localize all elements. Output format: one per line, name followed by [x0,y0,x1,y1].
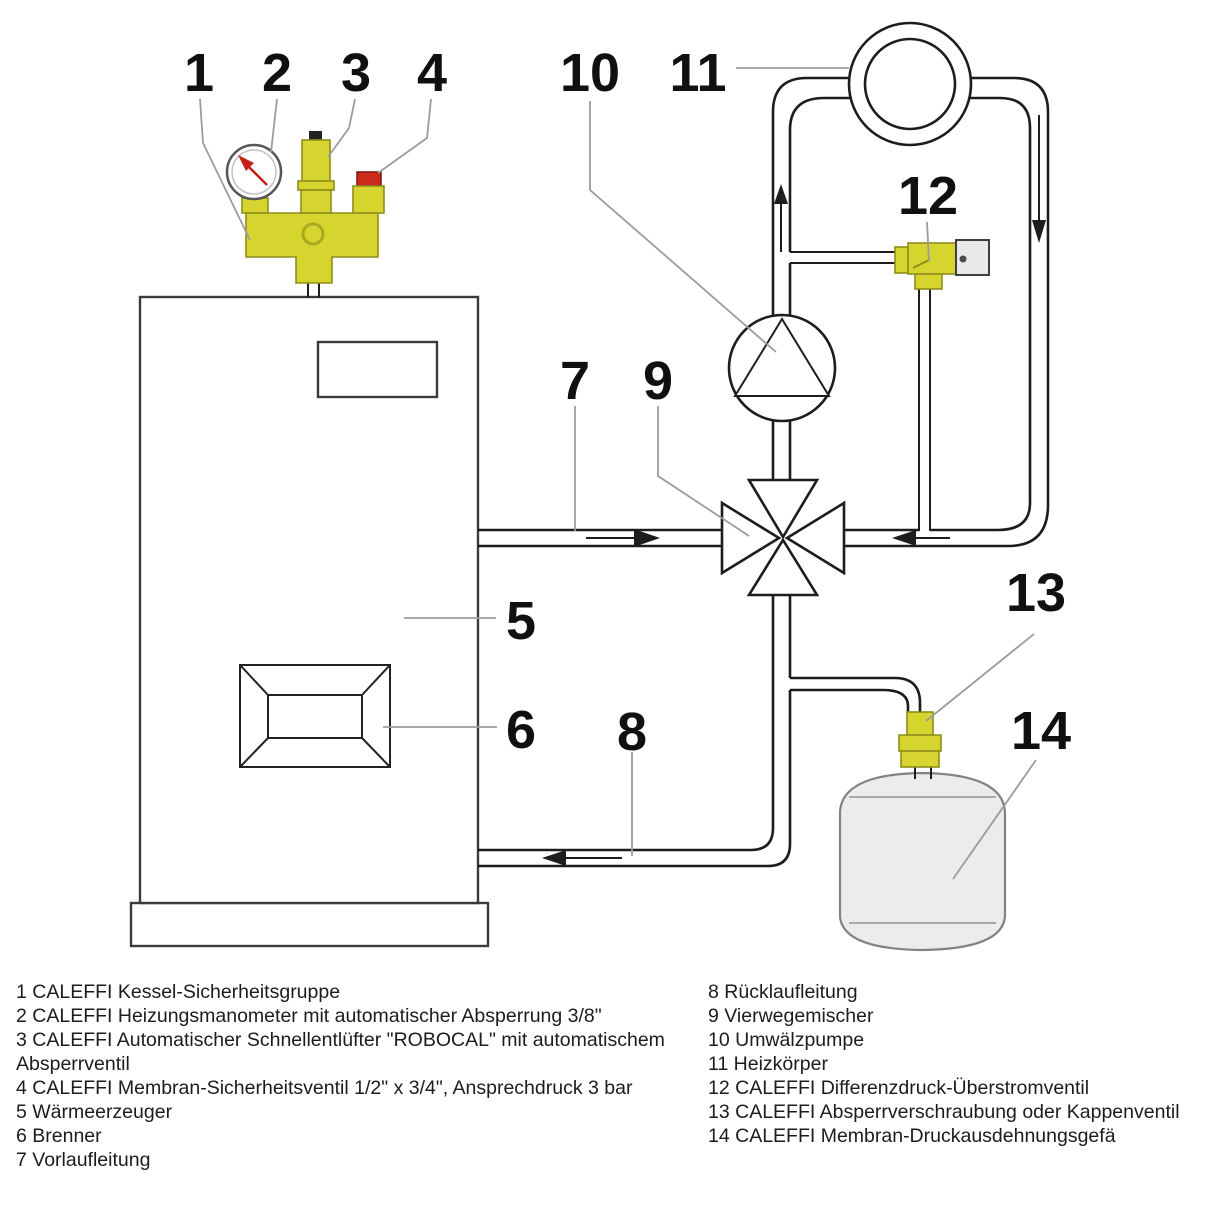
leader-4 [378,99,431,173]
leader-2 [271,99,277,152]
leader-10 [590,101,776,352]
boiler [131,297,488,946]
air-vent [298,131,334,213]
legend-item: 11 Heizkörper [708,1052,1208,1076]
supply-pipe [478,529,722,547]
mixer-pump-pipe [773,421,790,480]
legend-item: 2 CALEFFI Heizungsmanometer mit automati… [16,1004,692,1028]
legend-item: 3 CALEFFI Automatischer Schnellentlüfter… [16,1028,692,1076]
boiler-base [131,903,488,946]
legend-item: 7 Vorlaufleitung [16,1148,692,1172]
shutoff-fitting [899,712,941,779]
expansion-vessel-pipe [790,678,920,712]
legend-left-column: 1 CALEFFI Kessel-Sicherheitsgruppe 2 CAL… [16,980,692,1172]
safety-valve-red-cap [357,172,381,186]
leader-3 [328,99,355,157]
radiator [849,23,971,145]
four-way-mixer [722,480,844,595]
callout-4: 4 [417,43,447,103]
differential-overflow-valve [895,240,989,289]
callout-10: 10 [560,43,620,103]
callout-12: 12 [898,166,958,226]
callout-9: 9 [643,351,673,411]
flow-arrow-to-mixer [892,530,916,546]
callout-11: 11 [669,43,726,103]
radiator-supply-pipe [773,78,856,316]
boiler-safety-group [227,131,384,297]
circulation-pump [729,315,835,421]
legend-item: 13 CALEFFI Absperrverschraubung oder Kap… [708,1100,1208,1124]
pressure-gauge [227,145,281,199]
callout-3: 3 [341,43,371,103]
radiator-return-pipe [845,78,1048,546]
gauge-nut [242,198,268,213]
legend-item: 9 Vierwegemischer [708,1004,1208,1028]
legend-item: 1 CALEFFI Kessel-Sicherheitsgruppe [16,980,692,1004]
callout-2: 2 [262,43,292,103]
legend-item: 8 Rücklaufleitung [708,980,1208,1004]
callout-8: 8 [617,702,647,762]
heating-system-diagram: 1 2 3 4 5 6 7 8 9 10 11 12 13 14 [0,0,1214,975]
callout-5: 5 [506,591,536,651]
legend-right-column: 8 Rücklaufleitung 9 Vierwegemischer 10 U… [708,980,1208,1148]
legend-item: 10 Umwälzpumpe [708,1028,1208,1052]
legend-item: 5 Wärmeerzeuger [16,1100,692,1124]
legend-item: 4 CALEFFI Membran-Sicherheitsventil 1/2"… [16,1076,692,1100]
callout-7: 7 [560,351,590,411]
boiler-control-panel [318,342,437,397]
legend-item: 12 CALEFFI Differenzdruck-Überstromventi… [708,1076,1208,1100]
flow-arrow-up [774,184,788,204]
flow-arrow-return [542,850,566,866]
callout-13: 13 [1006,563,1066,623]
air-vent-cap [309,131,322,140]
schematic-page: 1 2 3 4 5 6 7 8 9 10 11 12 13 14 1 CALEF… [0,0,1214,1214]
callout-1: 1 [184,43,214,103]
legend-item: 14 CALEFFI Membran-Druckausdehnungsgefä [708,1124,1208,1148]
flow-arrow-down [1032,220,1046,243]
legend-item: 6 Brenner [16,1124,692,1148]
burner [240,665,390,767]
callout-14: 14 [1011,701,1071,761]
flow-arrow-supply [634,529,660,547]
safety-valve [353,172,384,213]
expansion-vessel [840,773,1005,950]
callout-6: 6 [506,700,536,760]
